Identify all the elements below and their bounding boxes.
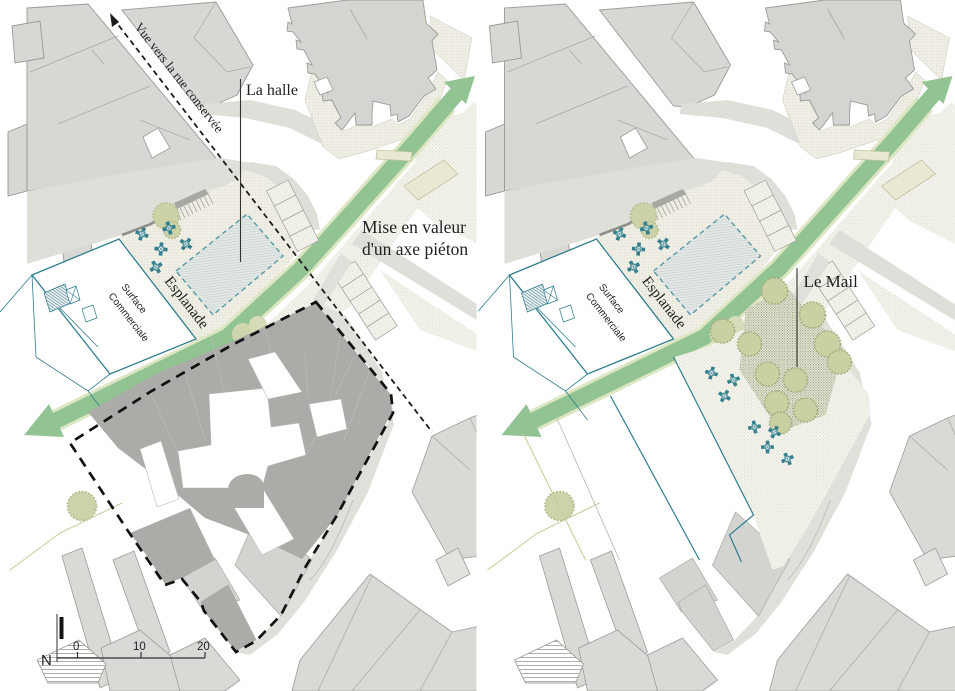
svg-text:0: 0 [73, 641, 79, 653]
svg-text:20: 20 [197, 641, 210, 653]
svg-text:10: 10 [133, 641, 146, 653]
svg-text:Le Mail: Le Mail [804, 272, 859, 291]
svg-text:d'un axe piéton: d'un axe piéton [362, 239, 468, 259]
svg-text:Mise en valeur: Mise en valeur [362, 217, 466, 237]
svg-text:N: N [41, 652, 52, 669]
svg-text:La halle: La halle [246, 82, 298, 99]
